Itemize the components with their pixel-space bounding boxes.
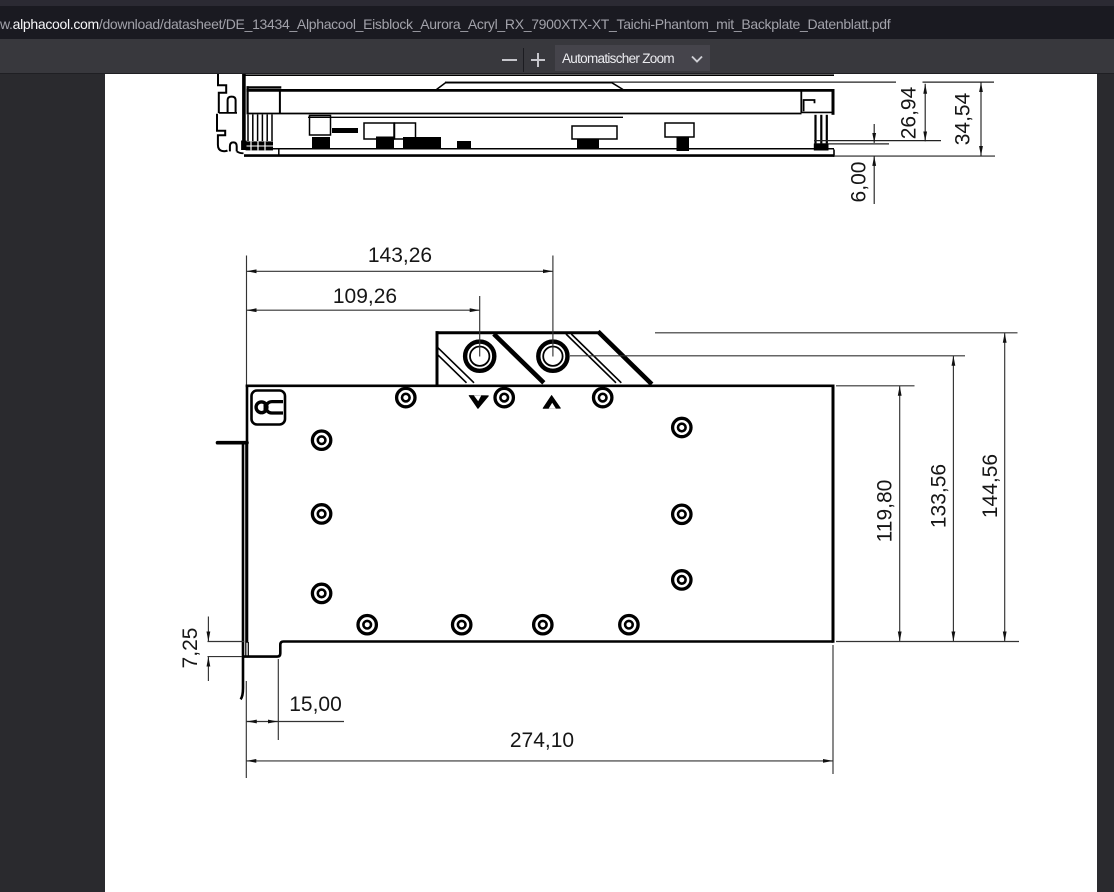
svg-text:274,10: 274,10 (510, 729, 574, 752)
svg-text:144,56: 144,56 (979, 454, 1002, 518)
svg-text:119,80: 119,80 (874, 480, 897, 543)
svg-text:7,25: 7,25 (179, 628, 202, 669)
svg-text:143,26: 143,26 (368, 244, 432, 267)
svg-text:34,54: 34,54 (952, 92, 975, 145)
svg-text:26,94: 26,94 (898, 86, 921, 139)
svg-text:15,00: 15,00 (289, 693, 342, 716)
svg-text:6,00: 6,00 (848, 162, 871, 203)
svg-text:133,56: 133,56 (928, 464, 951, 528)
svg-text:109,26: 109,26 (333, 285, 397, 308)
